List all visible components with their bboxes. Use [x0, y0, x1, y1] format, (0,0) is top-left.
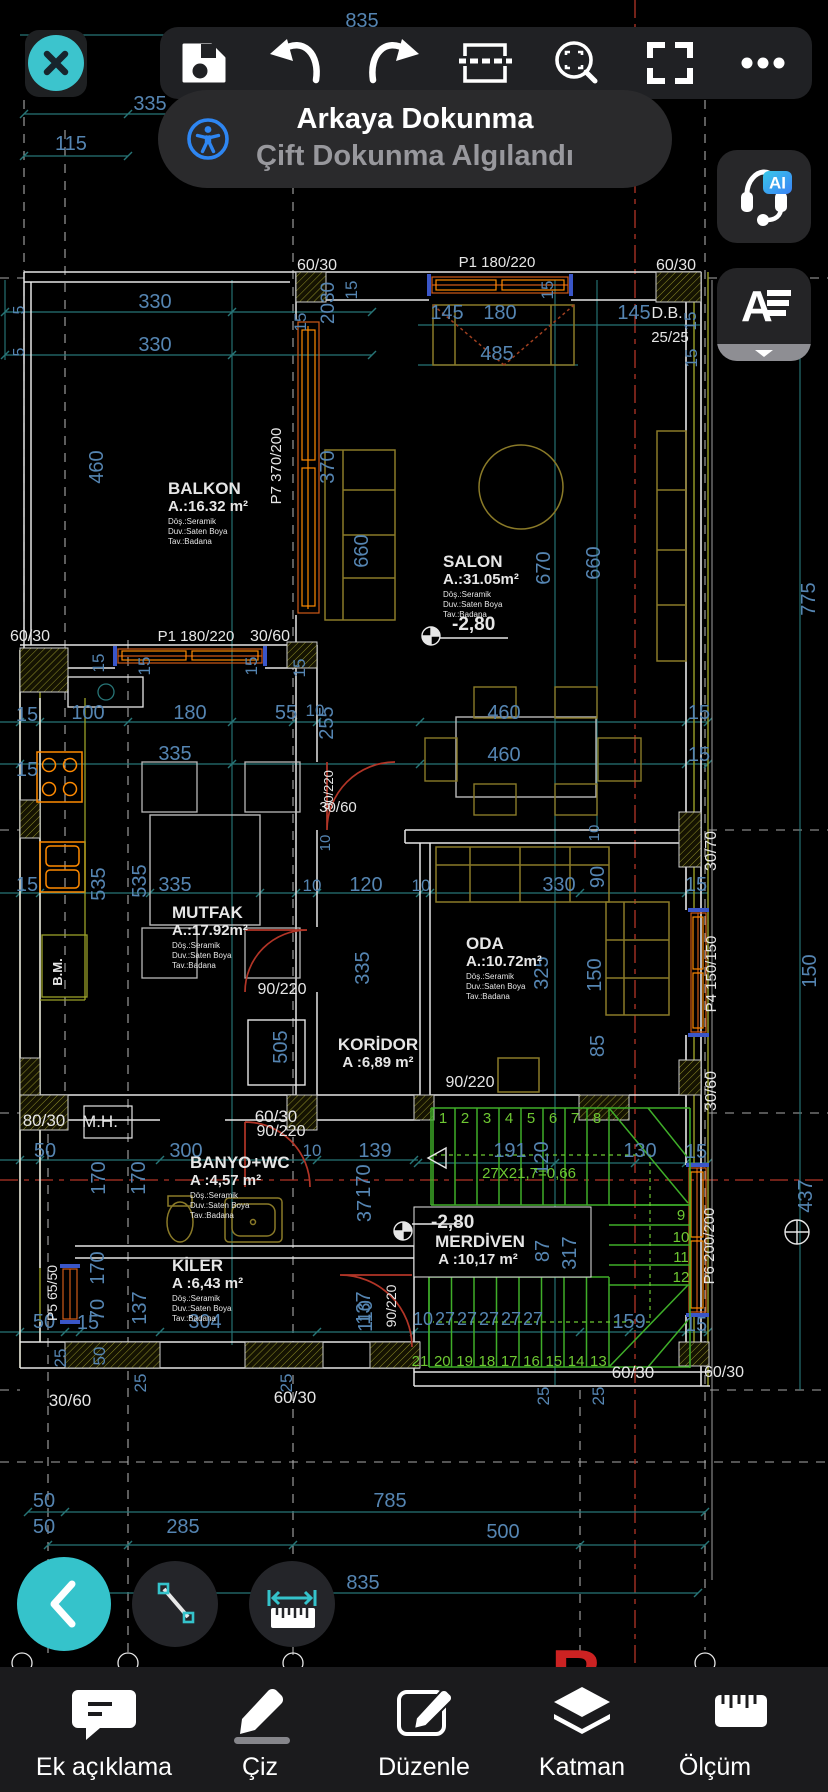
svg-text:ODA: ODA	[466, 934, 504, 953]
svg-text:19: 19	[456, 1353, 473, 1370]
svg-text:85: 85	[587, 1035, 609, 1057]
svg-text:335: 335	[352, 951, 374, 984]
svg-text:180: 180	[173, 702, 206, 724]
svg-text:30/60: 30/60	[703, 1071, 720, 1111]
svg-text:835: 835	[346, 1572, 379, 1594]
svg-text:170: 170	[88, 1161, 110, 1194]
svg-text:5: 5	[11, 305, 28, 314]
svg-text:Döş.:Seramik: Döş.:Seramik	[168, 517, 217, 526]
svg-text:660: 660	[351, 534, 373, 567]
svg-text:460: 460	[487, 744, 520, 766]
svg-text:10: 10	[586, 825, 603, 842]
svg-text:120: 120	[349, 874, 382, 896]
svg-text:139: 139	[358, 1140, 391, 1162]
svg-text:Duv.:Saten Boya: Duv.:Saten Boya	[443, 600, 503, 609]
svg-text:170: 170	[353, 1164, 375, 1197]
svg-text:60/30: 60/30	[10, 628, 50, 645]
svg-text:A :10,17 m²: A :10,17 m²	[438, 1251, 517, 1268]
svg-text:15: 15	[688, 744, 710, 766]
svg-text:370: 370	[317, 450, 339, 483]
svg-text:Döş.:Seramik: Döş.:Seramik	[172, 1294, 221, 1303]
svg-text:15: 15	[16, 704, 38, 726]
svg-text:90/220: 90/220	[321, 770, 336, 810]
svg-text:2030: 2030	[318, 282, 339, 324]
svg-text:115: 115	[55, 133, 87, 155]
svg-text:Duv.:Saten Boya: Duv.:Saten Boya	[172, 1304, 232, 1313]
svg-text:150: 150	[584, 958, 606, 991]
svg-text:A.:16.32 m²: A.:16.32 m²	[168, 498, 248, 515]
svg-text:460: 460	[487, 702, 520, 724]
svg-text:15: 15	[545, 1353, 562, 1370]
svg-text:87: 87	[532, 1240, 554, 1262]
svg-text:P6 200/200: P6 200/200	[701, 1208, 718, 1285]
svg-text:21: 21	[412, 1353, 429, 1370]
svg-text:15: 15	[89, 654, 108, 673]
svg-text:27: 27	[457, 1309, 477, 1329]
svg-text:25/25: 25/25	[651, 329, 689, 346]
svg-text:25: 25	[589, 1387, 608, 1406]
svg-text:130: 130	[623, 1140, 656, 1162]
svg-text:330: 330	[138, 291, 171, 313]
svg-text:15: 15	[682, 349, 701, 368]
svg-text:25: 25	[534, 1387, 553, 1406]
svg-text:16: 16	[523, 1353, 540, 1370]
svg-text:KORİDOR: KORİDOR	[338, 1035, 418, 1054]
svg-text:11: 11	[673, 1249, 689, 1266]
svg-text:27: 27	[501, 1309, 521, 1329]
svg-text:Tav.:Badana: Tav.:Badana	[172, 1314, 216, 1323]
svg-text:P1 180/220: P1 180/220	[158, 628, 235, 645]
svg-text:335: 335	[158, 743, 191, 765]
svg-text:Çiz: Çiz	[242, 1753, 278, 1781]
svg-text:Döş.:Seramik: Döş.:Seramik	[466, 972, 515, 981]
svg-text:15: 15	[290, 659, 309, 678]
svg-text:10: 10	[412, 876, 431, 895]
svg-text:50: 50	[33, 1490, 55, 1512]
svg-text:60/30: 60/30	[274, 1388, 317, 1407]
svg-text:BANYO+WC: BANYO+WC	[190, 1153, 290, 1172]
svg-text:90/220: 90/220	[383, 1284, 399, 1327]
svg-text:14: 14	[568, 1353, 585, 1370]
svg-text:8: 8	[593, 1110, 601, 1127]
svg-text:285: 285	[166, 1516, 199, 1538]
svg-text:80/30: 80/30	[23, 1111, 66, 1130]
svg-text:27X21,7=0,66: 27X21,7=0,66	[482, 1165, 576, 1182]
svg-text:255: 255	[316, 706, 338, 739]
svg-text:535: 535	[88, 867, 110, 900]
svg-text:15: 15	[77, 1312, 99, 1334]
svg-text:60/30: 60/30	[656, 257, 696, 274]
svg-text:90: 90	[587, 866, 609, 888]
svg-text:485: 485	[480, 343, 513, 365]
svg-text:159: 159	[612, 1311, 645, 1333]
svg-text:50: 50	[34, 1140, 56, 1162]
svg-text:A.:31.05m²: A.:31.05m²	[443, 571, 519, 588]
svg-text:Ölçüm: Ölçüm	[679, 1753, 751, 1781]
svg-text:A: A	[741, 282, 773, 331]
svg-text:MUTFAK: MUTFAK	[172, 903, 244, 922]
svg-text:-2,80: -2,80	[431, 1212, 474, 1233]
svg-text:15: 15	[135, 657, 154, 676]
svg-text:660: 660	[583, 546, 605, 579]
svg-text:P7 370/200: P7 370/200	[268, 428, 285, 505]
svg-text:Katman: Katman	[539, 1753, 625, 1781]
svg-text:10: 10	[673, 1229, 690, 1246]
svg-text:10: 10	[413, 1309, 433, 1329]
svg-text:6: 6	[549, 1110, 557, 1127]
svg-text:18: 18	[479, 1353, 496, 1370]
svg-text:330: 330	[138, 334, 171, 356]
svg-text:Duv.:Saten Boya: Duv.:Saten Boya	[172, 951, 232, 960]
svg-text:Duv.:Saten Boya: Duv.:Saten Boya	[190, 1201, 250, 1210]
svg-text:335: 335	[158, 874, 191, 896]
svg-text:3: 3	[483, 1110, 491, 1127]
svg-text:12: 12	[673, 1269, 690, 1286]
svg-text:Döş.:Seramik: Döş.:Seramik	[172, 941, 221, 950]
svg-text:A :6,43 m²: A :6,43 m²	[172, 1275, 243, 1292]
svg-text:Duv.:Saten Boya: Duv.:Saten Boya	[168, 527, 228, 536]
svg-text:B.M.: B.M.	[50, 958, 65, 985]
svg-text:15: 15	[538, 281, 557, 300]
svg-text:191: 191	[493, 1140, 526, 1162]
svg-text:15: 15	[291, 313, 310, 332]
svg-text:15: 15	[685, 874, 707, 896]
svg-text:10: 10	[317, 835, 334, 852]
svg-text:330: 330	[542, 874, 575, 896]
svg-text:37: 37	[354, 1200, 376, 1222]
svg-text:Tav.:Badana: Tav.:Badana	[190, 1211, 234, 1220]
svg-text:505: 505	[270, 1030, 292, 1063]
svg-text:535: 535	[129, 864, 151, 897]
svg-text:10: 10	[303, 1141, 322, 1160]
svg-text:110: 110	[355, 1300, 377, 1332]
svg-text:170: 170	[87, 1251, 109, 1284]
svg-text:13: 13	[590, 1353, 607, 1370]
svg-text:55: 55	[275, 702, 297, 724]
svg-text:170: 170	[128, 1161, 150, 1194]
svg-text:9: 9	[677, 1207, 685, 1224]
svg-text:MERDİVEN: MERDİVEN	[435, 1232, 525, 1251]
svg-text:A.:17.92m²: A.:17.92m²	[172, 922, 248, 939]
svg-text:50: 50	[90, 1347, 109, 1366]
svg-text:145: 145	[617, 302, 650, 324]
svg-text:A :6,89 m²: A :6,89 m²	[342, 1054, 413, 1071]
svg-text:1: 1	[439, 1110, 447, 1127]
svg-text:Tav.:Badana: Tav.:Badana	[172, 961, 216, 970]
svg-text:SALON: SALON	[443, 552, 503, 571]
svg-text:5: 5	[11, 347, 28, 356]
svg-text:P4 150/150: P4 150/150	[703, 936, 720, 1013]
svg-text:4: 4	[505, 1110, 513, 1127]
svg-text:180: 180	[483, 302, 516, 324]
svg-text:60/30: 60/30	[297, 257, 337, 274]
svg-text:2: 2	[461, 1110, 469, 1127]
svg-text:Tav.:Badana: Tav.:Badana	[168, 537, 212, 546]
svg-text:90/220: 90/220	[257, 1123, 306, 1140]
svg-text:Düzenle: Düzenle	[378, 1753, 470, 1781]
svg-text:AI: AI	[769, 174, 786, 193]
svg-text:150: 150	[799, 954, 821, 987]
svg-text:A :4,57 m²: A :4,57 m²	[190, 1172, 261, 1189]
svg-text:-2,80: -2,80	[452, 614, 495, 635]
svg-text:Döş.:Seramik: Döş.:Seramik	[443, 590, 492, 599]
svg-text:20: 20	[434, 1353, 451, 1370]
svg-text:775: 775	[798, 582, 820, 615]
svg-text:137: 137	[129, 1291, 151, 1324]
svg-text:P5 65/50: P5 65/50	[44, 1265, 60, 1321]
svg-text:90/220: 90/220	[258, 981, 307, 998]
svg-text:437: 437	[795, 1179, 817, 1212]
svg-text:7: 7	[571, 1110, 579, 1127]
svg-text:670: 670	[533, 551, 555, 584]
svg-text:M.H.: M.H.	[82, 1112, 118, 1131]
svg-text:17: 17	[501, 1353, 518, 1370]
svg-text:15: 15	[681, 312, 700, 331]
svg-text:BALKON: BALKON	[168, 479, 241, 498]
svg-text:60/30: 60/30	[612, 1363, 655, 1382]
svg-text:25: 25	[131, 1374, 150, 1393]
svg-text:D.B.: D.B.	[651, 305, 682, 322]
svg-text:30/60: 30/60	[49, 1391, 92, 1410]
svg-text:25: 25	[51, 1349, 70, 1368]
svg-text:60/30: 60/30	[704, 1364, 744, 1381]
svg-text:27: 27	[479, 1309, 499, 1329]
svg-text:Döş.:Seramik: Döş.:Seramik	[190, 1191, 239, 1200]
svg-text:KİLER: KİLER	[172, 1256, 223, 1275]
svg-text:145: 145	[430, 302, 463, 324]
svg-text:10: 10	[303, 876, 322, 895]
svg-text:15: 15	[16, 759, 38, 781]
svg-text:50: 50	[33, 1516, 55, 1538]
svg-text:Ek açıklama: Ek açıklama	[36, 1753, 172, 1781]
svg-text:15: 15	[685, 1141, 707, 1163]
svg-text:317: 317	[559, 1236, 581, 1269]
svg-text:27: 27	[435, 1309, 455, 1329]
svg-text:460: 460	[86, 450, 108, 483]
svg-text:27: 27	[523, 1309, 543, 1329]
svg-text:15: 15	[342, 281, 361, 300]
svg-text:100: 100	[71, 702, 104, 724]
svg-text:30/70: 30/70	[703, 831, 720, 871]
svg-text:15: 15	[685, 1314, 707, 1336]
svg-text:15: 15	[16, 874, 38, 896]
svg-text:15: 15	[688, 702, 710, 724]
svg-text:Tav.:Badana: Tav.:Badana	[466, 992, 510, 1001]
svg-text:5: 5	[527, 1110, 535, 1127]
svg-text:A.:10.72m²: A.:10.72m²	[466, 953, 542, 970]
svg-text:785: 785	[373, 1490, 406, 1512]
svg-text:30/60: 30/60	[250, 628, 290, 645]
svg-text:Duv.:Saten Boya: Duv.:Saten Boya	[466, 982, 526, 991]
svg-text:90/220: 90/220	[446, 1074, 495, 1091]
svg-text:15: 15	[242, 657, 261, 676]
svg-text:500: 500	[486, 1521, 519, 1543]
svg-text:P1 180/220: P1 180/220	[459, 254, 536, 271]
